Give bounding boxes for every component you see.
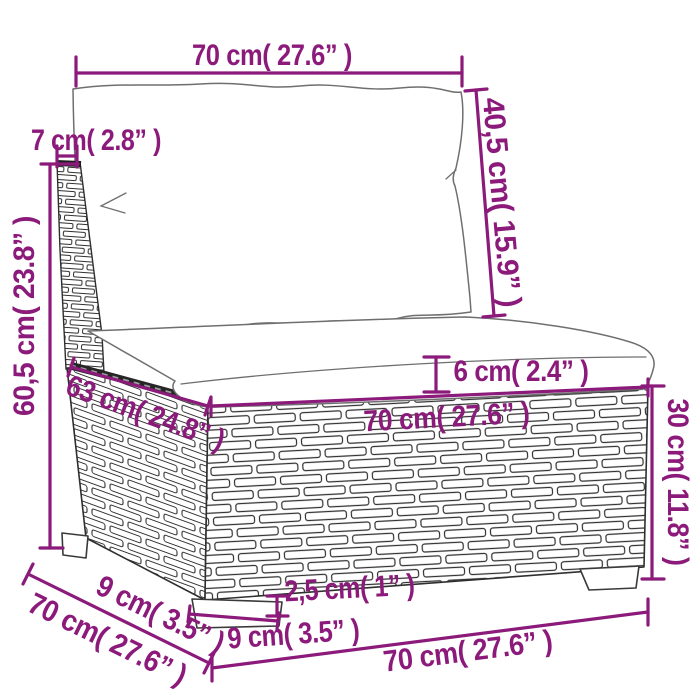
dim-label-backrest-thickness: 7 cm( 2.8” ) [31,124,161,157]
back-cushion [73,83,471,333]
product-dimension-diagram: 70 cm( 27.6” ) 7 cm( 2.8” ) 40,5 cm( 15.… [0,0,700,700]
dim-foot-height: 2,5 cm( 1” ) [267,569,415,616]
dim-label-overall-height: 60,5 cm( 23.8” ) [8,216,41,416]
dim-label-cushion-thickness: 6 cm( 2.4” ) [454,355,589,388]
dim-backrest-height: 40,5 cm( 15.9” ) [465,89,527,317]
dim-top-width: 70 cm( 27.6” ) [76,39,462,86]
dim-label-base-height: 30 cm( 11.8” ) [661,399,694,566]
dim-base-height: 30 cm( 11.8” ) [642,386,694,579]
dim-label-foot-height: 2,5 cm( 1” ) [284,569,416,609]
dim-label-top-width: 70 cm( 27.6” ) [192,39,352,72]
dim-label-bottom-width: 70 cm( 27.6” ) [381,624,554,678]
foot-rear-left [62,533,88,558]
foot-front-right [580,566,639,590]
diagram-svg: 70 cm( 27.6” ) 7 cm( 2.8” ) 40,5 cm( 15.… [0,0,700,700]
